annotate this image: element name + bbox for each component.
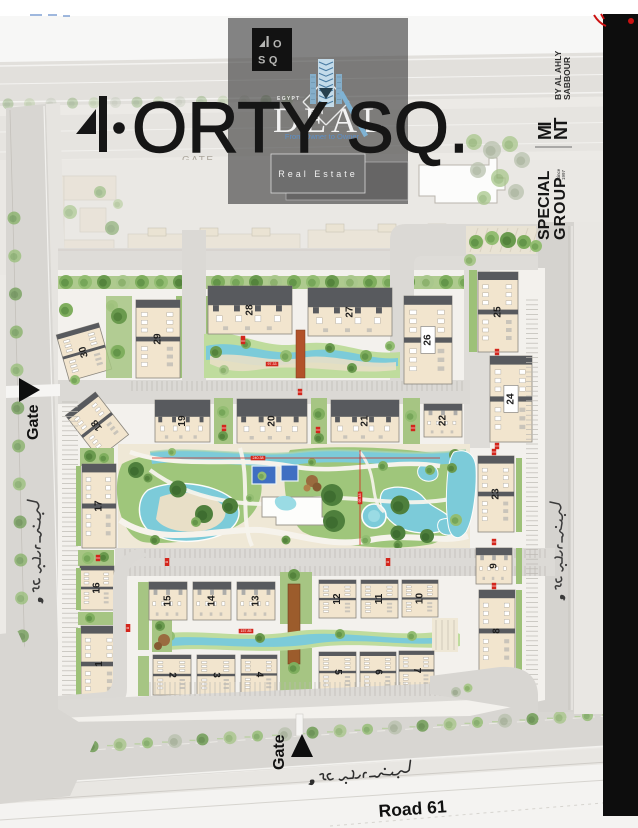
- svg-text:8: 8: [165, 561, 169, 563]
- svg-text:20: 20: [267, 415, 278, 427]
- svg-text:22: 22: [438, 415, 449, 427]
- svg-text:10: 10: [415, 593, 426, 605]
- svg-text:16: 16: [92, 582, 103, 594]
- svg-text:23: 23: [491, 488, 502, 500]
- svg-text:15: 15: [163, 595, 174, 607]
- svg-text:NT: NT: [551, 118, 571, 140]
- svg-text:24: 24: [506, 393, 517, 405]
- svg-text:9: 9: [489, 563, 500, 569]
- svg-text:17: 17: [94, 500, 105, 512]
- svg-text:ORTY SQ.: ORTY SQ.: [132, 89, 469, 168]
- svg-text:Gate: Gate: [271, 734, 288, 770]
- svg-text:157.85: 157.85: [241, 629, 252, 633]
- svg-text:SQ: SQ: [258, 55, 281, 67]
- svg-text:6: 6: [373, 669, 384, 675]
- svg-text:SABBOUR: SABBOUR: [562, 57, 572, 100]
- svg-text:240.38: 240.38: [253, 456, 264, 460]
- svg-text:3: 3: [211, 672, 222, 678]
- svg-text:25: 25: [493, 306, 504, 318]
- svg-text:8: 8: [126, 627, 130, 629]
- svg-text:O: O: [273, 39, 282, 51]
- svg-text:Gate: Gate: [25, 404, 42, 440]
- svg-text:SPECIAL: SPECIAL: [536, 170, 553, 240]
- svg-text:27: 27: [345, 306, 356, 318]
- svg-text:29: 29: [153, 333, 164, 345]
- svg-text:8: 8: [386, 561, 390, 563]
- svg-text:19: 19: [177, 415, 188, 427]
- svg-text:2: 2: [167, 672, 178, 678]
- svg-text:12: 12: [332, 593, 343, 605]
- svg-text:7: 7: [411, 668, 422, 674]
- svg-text:26: 26: [423, 334, 434, 346]
- svg-text:11: 11: [374, 593, 385, 604]
- svg-text:8: 8: [492, 628, 503, 634]
- svg-text:Real Estate: Real Estate: [278, 169, 358, 179]
- svg-text:14: 14: [207, 595, 218, 607]
- svg-text:97.33: 97.33: [268, 362, 277, 366]
- svg-text:95.48: 95.48: [358, 494, 362, 503]
- svg-text:1: 1: [94, 661, 105, 667]
- svg-text:28: 28: [245, 304, 256, 316]
- svg-text:5: 5: [332, 669, 343, 675]
- svg-text:GROUP: GROUP: [552, 176, 569, 240]
- svg-text:4: 4: [254, 672, 265, 678]
- svg-text:1997: 1997: [561, 169, 566, 180]
- svg-text:13: 13: [251, 595, 262, 607]
- svg-text:21: 21: [360, 415, 371, 427]
